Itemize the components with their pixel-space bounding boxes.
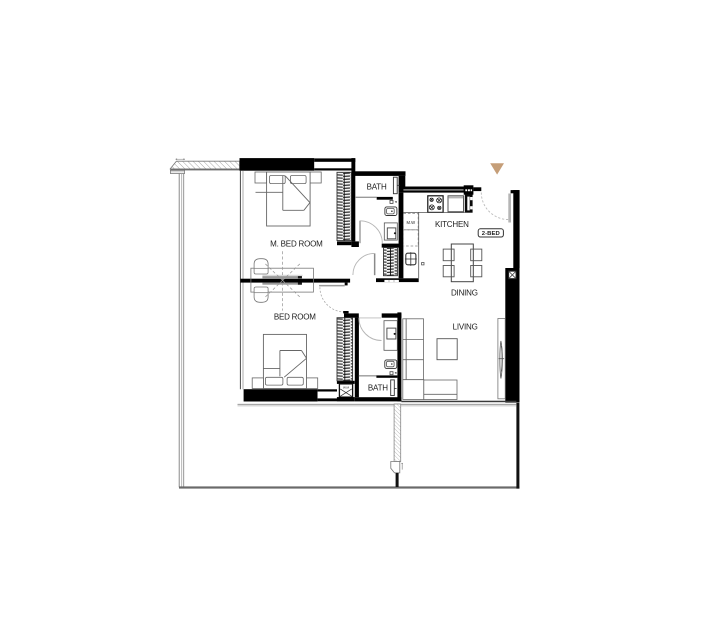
svg-text:W.M: W.M [343, 385, 349, 389]
svg-text:KITCHEN: KITCHEN [435, 220, 469, 229]
svg-text:BATH: BATH [368, 384, 388, 393]
svg-text:2-BED: 2-BED [482, 231, 500, 237]
svg-text:BED ROOM: BED ROOM [274, 312, 316, 321]
svg-text:DINING: DINING [451, 289, 478, 298]
svg-text:BATH: BATH [367, 182, 387, 191]
svg-text:M.W: M.W [406, 220, 415, 225]
svg-text:M. BED ROOM: M. BED ROOM [270, 240, 323, 249]
svg-text:LIVING: LIVING [453, 323, 478, 332]
